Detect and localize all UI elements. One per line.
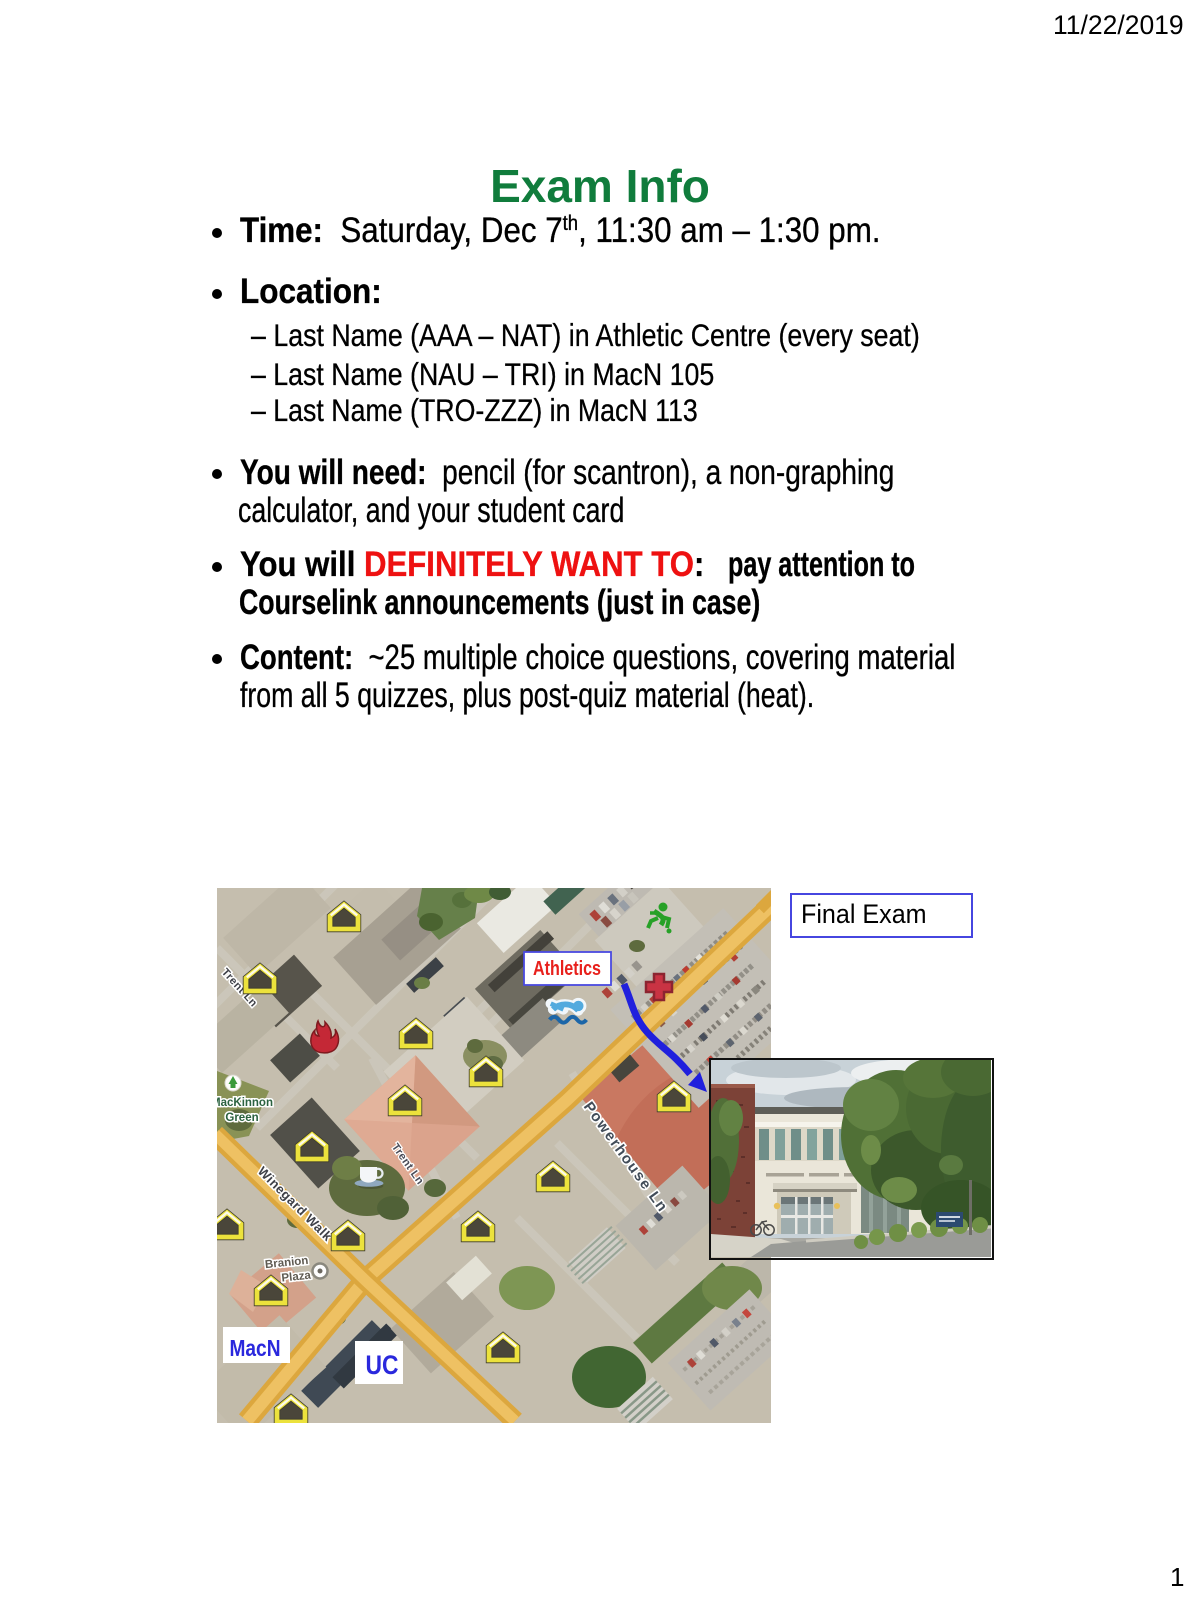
svg-text:Green: Green bbox=[225, 1112, 258, 1124]
svg-text:MacN: MacN bbox=[230, 1335, 281, 1361]
svg-text:Athletics: Athletics bbox=[533, 958, 601, 980]
svg-text:UC: UC bbox=[366, 1350, 399, 1380]
svg-text:MacKinnon: MacKinnon bbox=[217, 1097, 273, 1109]
